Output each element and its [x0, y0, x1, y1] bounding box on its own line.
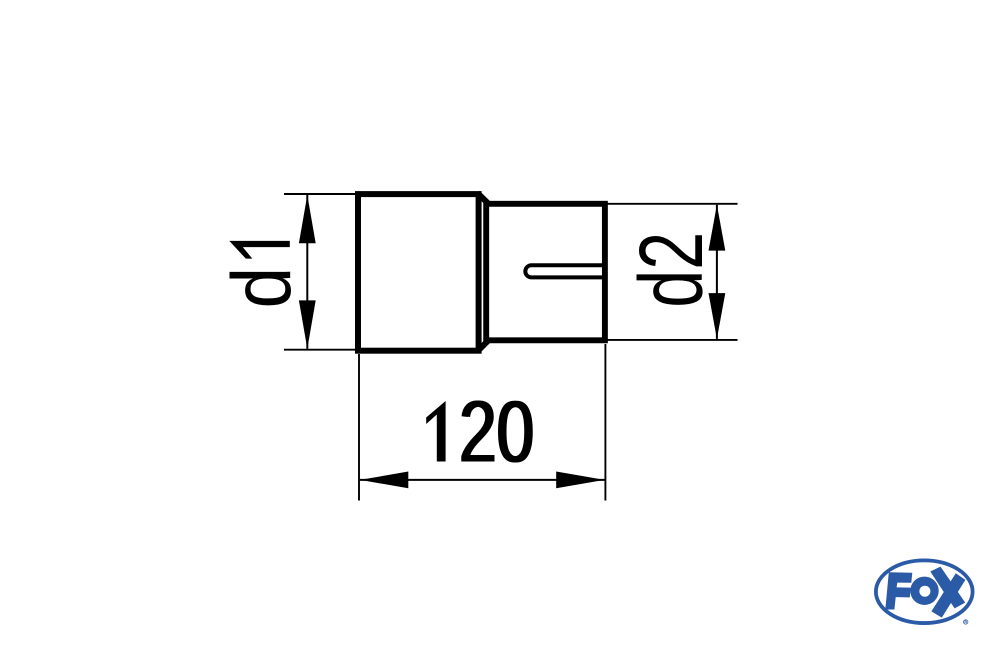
svg-text:20: 20 — [460, 382, 535, 480]
svg-text:d2: d2 — [621, 232, 721, 308]
svg-text:d: d — [214, 267, 308, 309]
